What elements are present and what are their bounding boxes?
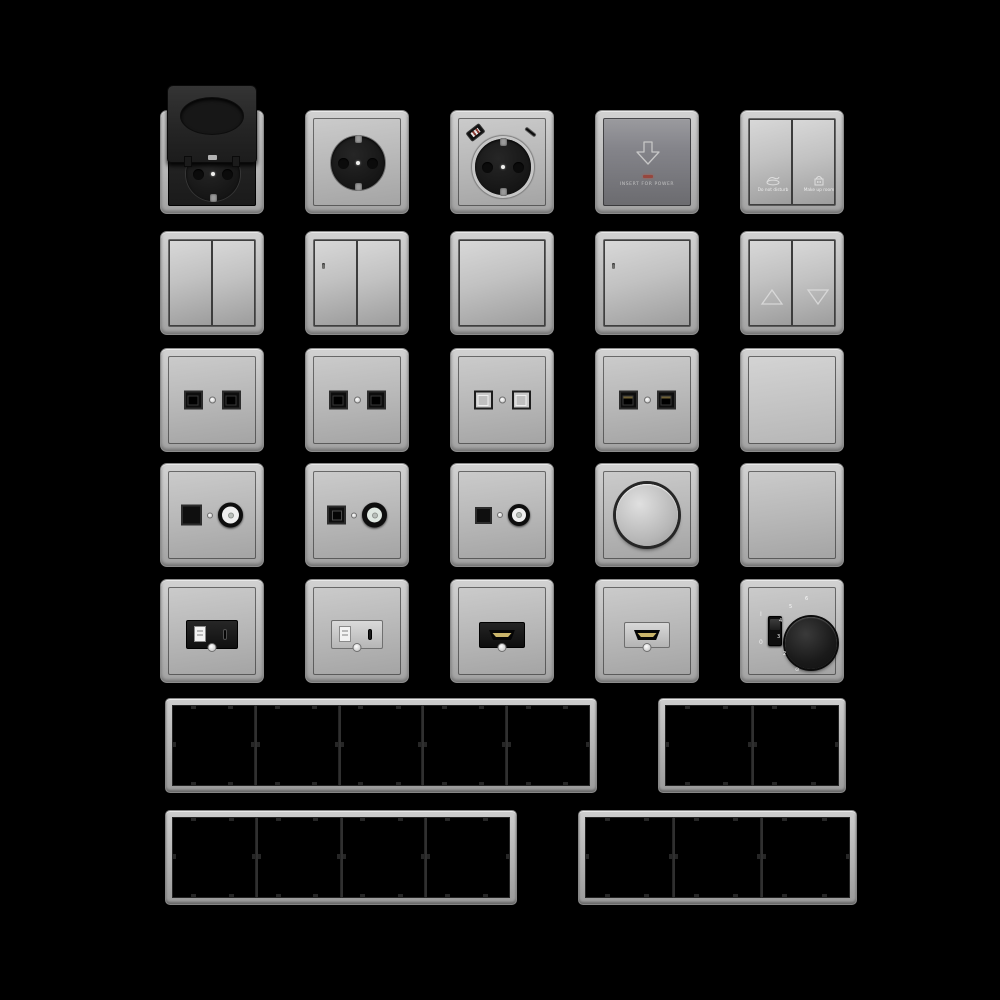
lid-hinge-left	[184, 156, 192, 167]
mount-tab	[835, 742, 838, 747]
mount-tab	[483, 894, 488, 897]
rocker-divider	[356, 241, 358, 325]
rocker-left[interactable]	[315, 241, 357, 325]
mount-tab	[822, 894, 827, 897]
socket-clip-bottom	[210, 194, 217, 202]
socket-center-pin	[211, 172, 215, 176]
coax-center	[229, 513, 233, 517]
jack-row	[313, 503, 401, 528]
thermostat-scale-mark: 2	[783, 651, 786, 657]
mount-tab	[228, 706, 233, 709]
frame-aperture	[673, 817, 762, 898]
frame-4-gang	[165, 810, 517, 905]
mount-tab	[275, 782, 280, 785]
make-up-room-icon	[811, 172, 827, 186]
tv-data-outlet-1	[160, 463, 264, 567]
tv-data-outlet-1-faceplate	[168, 471, 256, 559]
rocker-divider	[791, 241, 793, 325]
data-jack-right	[512, 391, 531, 410]
mount-tab	[748, 742, 751, 747]
socket-center-pin	[501, 165, 505, 169]
center-screw	[644, 397, 651, 404]
mount-tab	[398, 818, 403, 821]
do-not-disturb-icon	[765, 172, 781, 186]
mount-tab	[666, 742, 669, 747]
mount-tab	[644, 818, 649, 821]
mount-tab	[723, 782, 728, 785]
coax-center	[517, 513, 521, 517]
mount-tab	[782, 894, 787, 897]
thermostat-scale-mark: 4	[779, 618, 782, 624]
mount-tab	[694, 818, 699, 821]
frame-aperture	[341, 817, 426, 898]
frame-aperture	[172, 705, 255, 786]
frame-5-gang-aperture-row	[172, 705, 590, 786]
blind-down-arrow-icon	[806, 287, 830, 307]
rocker-blind-faceplate	[748, 239, 836, 327]
hdmi-outlet-light	[595, 579, 699, 683]
flip-lid-cover[interactable]	[167, 85, 257, 163]
rocker-area	[169, 240, 255, 326]
usb-charger-black-faceplate	[168, 587, 256, 675]
mount-tab	[772, 782, 777, 785]
mount-tab	[424, 742, 427, 747]
socket-flip-lid	[160, 110, 264, 214]
mount-tab	[396, 706, 401, 709]
rocker[interactable]	[460, 241, 544, 325]
jack-inner	[227, 396, 236, 404]
mount-tab	[694, 894, 699, 897]
jack-inner	[479, 396, 488, 405]
mount-tab	[733, 894, 738, 897]
mount-tab	[229, 818, 234, 821]
frame-5-gang	[165, 698, 597, 793]
mount-tab	[398, 894, 403, 897]
hdmi-outlet-light-faceplate	[603, 587, 691, 675]
slider-off-label: 0	[759, 639, 763, 646]
mount-tab	[358, 782, 363, 785]
rocker-area	[314, 240, 400, 326]
data-jack-right	[657, 391, 676, 410]
coax-connector	[218, 503, 243, 528]
frame-aperture	[506, 705, 590, 786]
rocker-area	[749, 240, 835, 326]
mount-tab	[685, 782, 690, 785]
lid-recess	[181, 98, 243, 134]
status-led	[322, 263, 325, 269]
rocker-left[interactable]	[170, 241, 212, 325]
hdmi-outlet-black	[450, 579, 554, 683]
coax-connector	[362, 503, 387, 528]
mount-tab	[228, 782, 233, 785]
thermostat-scale-mark: 6	[805, 596, 808, 602]
socket-hole-left	[338, 158, 349, 169]
mount-tab	[605, 894, 610, 897]
thermostat-scale-mark: 3	[777, 634, 780, 640]
mount-tab	[846, 854, 849, 859]
mount-tab	[343, 854, 346, 859]
rocker-double-led	[305, 231, 409, 335]
hdmi-port	[489, 630, 515, 640]
mount-tab	[757, 854, 760, 859]
rocker-area	[604, 240, 690, 326]
center-screw	[209, 397, 216, 404]
mount-tab	[427, 854, 430, 859]
socket-hole-right	[222, 169, 233, 180]
frame-2-gang-aperture-row	[665, 705, 839, 786]
jack-inner	[333, 511, 341, 519]
usb-a-port	[339, 626, 351, 642]
module-screw	[643, 643, 652, 652]
mount-tab	[526, 706, 531, 709]
usb-a-port	[465, 123, 485, 142]
usb-c-port	[368, 629, 372, 640]
jack-row	[168, 391, 256, 410]
data-jack-left	[184, 391, 203, 410]
blank-plate-flat-faceplate	[748, 471, 836, 559]
mount-tab	[421, 854, 424, 859]
blank-plate-flat	[740, 463, 844, 567]
mount-tab	[251, 742, 254, 747]
tv-data-outlet-2-faceplate	[313, 471, 401, 559]
mount-tab	[258, 854, 261, 859]
data-jack-left	[619, 391, 638, 410]
hdmi-contact	[638, 633, 657, 637]
dimmer-knob[interactable]	[616, 484, 678, 546]
schuko-socket-opening	[331, 136, 385, 190]
thermostat-scale-mark: 5	[789, 604, 792, 610]
slider-on-label: I	[760, 611, 762, 618]
mount-tab	[685, 706, 690, 709]
usb-a-contacts	[470, 128, 480, 137]
rocker[interactable]	[605, 241, 689, 325]
frame-aperture	[752, 705, 840, 786]
mount-tab	[191, 818, 196, 821]
center-screw	[207, 512, 213, 518]
usb-a-contacts	[342, 630, 348, 638]
mount-tab	[586, 854, 589, 859]
thermostat-faceplate: I065432⊙	[748, 587, 836, 675]
rocker-right[interactable]	[212, 241, 254, 325]
mount-tab	[442, 782, 447, 785]
mount-tab	[782, 818, 787, 821]
data-jack-right	[222, 391, 241, 410]
usb-charger-black	[160, 579, 264, 683]
mount-tab	[644, 894, 649, 897]
hdmi-contact	[493, 633, 512, 637]
jack-inner	[662, 396, 671, 404]
usb-a-port	[194, 626, 206, 642]
mount-tab	[445, 818, 450, 821]
frame-aperture	[172, 817, 256, 898]
jack-inner	[517, 396, 526, 405]
data-jack-left	[329, 391, 348, 410]
jack-inner	[624, 396, 633, 404]
data-outlet-double-black-2-faceplate	[313, 356, 401, 444]
rocker-right[interactable]	[357, 241, 399, 325]
usb-a-contacts	[197, 630, 203, 638]
mount-tab	[586, 742, 589, 747]
data-outlet-double-black-1	[160, 348, 264, 452]
rocker-divider	[791, 120, 793, 204]
keycard-switch-faceplate: INSERT FOR POWER	[603, 118, 691, 206]
mount-tab	[276, 818, 281, 821]
center-screw	[354, 397, 361, 404]
blind-up-arrow-icon	[760, 287, 784, 307]
mount-tab	[445, 894, 450, 897]
data-jack-left	[474, 391, 493, 410]
data-jack	[327, 506, 346, 525]
mount-tab	[733, 818, 738, 821]
socket-clip-top	[355, 135, 362, 143]
mount-tab	[229, 894, 234, 897]
socket-center-pin	[356, 161, 360, 165]
blind-rocker-down[interactable]	[792, 241, 834, 325]
mount-tab	[822, 818, 827, 821]
data-outlet-double-black-2	[305, 348, 409, 452]
mount-tab	[723, 706, 728, 709]
socket-schuko	[305, 110, 409, 214]
mount-tab	[360, 894, 365, 897]
jack-inner	[189, 396, 198, 404]
frame-2-gang	[658, 698, 846, 793]
mount-tab	[312, 706, 317, 709]
mount-tab	[483, 818, 488, 821]
lid-latch	[208, 155, 217, 160]
rotary-dimmer	[595, 463, 699, 567]
usb-charger-light	[305, 579, 409, 683]
rocker-single-faceplate	[458, 239, 546, 327]
mount-tab	[276, 894, 281, 897]
mount-tab	[275, 706, 280, 709]
rocker-double-faceplate	[168, 239, 256, 327]
mount-tab	[313, 894, 318, 897]
thermostat-scale-symbol: ⊙	[795, 667, 799, 673]
usb-charger-light-faceplate	[313, 587, 401, 675]
mount-tab	[341, 742, 344, 747]
schuko-socket-opening	[475, 139, 531, 195]
frame-3-gang-aperture-row	[585, 817, 850, 898]
mount-tab	[508, 742, 511, 747]
jack-inner	[334, 396, 343, 404]
mount-tab	[335, 742, 338, 747]
keycard-label: INSERT FOR POWER	[603, 182, 691, 187]
thermostat: I065432⊙	[740, 579, 844, 683]
mount-tab	[479, 782, 484, 785]
rocker-single-led	[595, 231, 699, 335]
rotary-dimmer-faceplate	[603, 471, 691, 559]
card-insert-arrow-icon	[633, 140, 663, 166]
rocker-blind	[740, 231, 844, 335]
socket-clip-top	[500, 138, 507, 146]
keycard-switch[interactable]: INSERT FOR POWER	[595, 110, 699, 214]
mount-tab	[442, 706, 447, 709]
socket-hole-right	[367, 158, 378, 169]
module-screw	[353, 643, 362, 652]
mount-tab	[754, 742, 757, 747]
frame-aperture	[339, 705, 423, 786]
mount-tab	[563, 782, 568, 785]
switch-socket-product-sheet: INSERT FOR POWERDo not disturbMake up ro…	[0, 0, 1000, 1000]
mount-tab	[360, 818, 365, 821]
blind-rocker-up[interactable]	[750, 241, 792, 325]
mount-tab	[396, 782, 401, 785]
center-screw	[499, 397, 506, 404]
usb-c-port	[223, 629, 227, 640]
socket-schuko-usb-faceplate	[458, 118, 546, 206]
socket-clip-bottom	[500, 188, 507, 196]
socket-hole-right	[513, 162, 524, 173]
jack-row	[168, 503, 256, 528]
mount-tab	[763, 854, 766, 859]
data-outlet-double-black-1-faceplate	[168, 356, 256, 444]
coax-connector	[508, 504, 530, 526]
lid-hinge-right	[232, 156, 240, 167]
data-outlet-double-light-faceplate	[458, 356, 546, 444]
hotel-left-label: Do not disturb	[753, 188, 793, 193]
frame-aperture	[422, 705, 506, 786]
mount-tab	[337, 854, 340, 859]
jack-row	[313, 391, 401, 410]
frame-aperture	[585, 817, 673, 898]
mount-tab	[191, 782, 196, 785]
data-outlet-double-rj45-faceplate	[603, 356, 691, 444]
status-led	[612, 263, 615, 269]
hotel-right-label: Make up room	[799, 188, 835, 193]
socket-hole-left	[482, 162, 493, 173]
frame-aperture	[256, 817, 341, 898]
mount-tab	[675, 854, 678, 859]
socket-schuko-faceplate	[313, 118, 401, 206]
tv-data-outlet-2	[305, 463, 409, 567]
jack-row	[458, 504, 546, 526]
mount-tab	[506, 854, 509, 859]
mount-tab	[563, 706, 568, 709]
blank-plate-raised	[740, 348, 844, 452]
mount-tab	[502, 742, 505, 747]
jack-inner	[372, 396, 381, 404]
module-screw	[498, 643, 507, 652]
frame-aperture	[425, 817, 510, 898]
hdmi-port	[634, 630, 660, 640]
rocker-single-led-faceplate	[603, 239, 691, 327]
socket-schuko-usb	[450, 110, 554, 214]
mount-tab	[811, 706, 816, 709]
data-outlet-double-light	[450, 348, 554, 452]
module-screw	[208, 643, 217, 652]
jack-row	[458, 391, 546, 410]
frame-aperture	[761, 817, 850, 898]
rocker-double	[160, 231, 264, 335]
mount-tab	[811, 782, 816, 785]
center-screw	[497, 512, 503, 518]
mount-tab	[173, 742, 176, 747]
mount-tab	[358, 706, 363, 709]
socket-hole-left	[193, 169, 204, 180]
mount-tab	[526, 782, 531, 785]
jack-row	[603, 391, 691, 410]
usb-c-port	[524, 126, 537, 137]
mount-tab	[252, 854, 255, 859]
rocker-area: Do not disturbMake up room	[749, 119, 835, 205]
data-outlet-double-rj45	[595, 348, 699, 452]
mount-tab	[191, 894, 196, 897]
rocker-area	[459, 240, 545, 326]
frame-aperture	[255, 705, 339, 786]
power-led	[643, 175, 653, 178]
mount-tab	[669, 854, 672, 859]
data-jack	[475, 507, 492, 524]
thermostat-knob[interactable]	[785, 617, 837, 669]
hdmi-outlet-black-faceplate	[458, 587, 546, 675]
mount-tab	[605, 818, 610, 821]
mount-tab	[772, 706, 777, 709]
tv-data-outlet-3	[450, 463, 554, 567]
mount-tab	[173, 854, 176, 859]
data-jack	[181, 505, 202, 526]
blank-plate-raised-faceplate	[748, 356, 836, 444]
mount-tab	[418, 742, 421, 747]
hotel-service-rocker-faceplate: Do not disturbMake up room	[748, 118, 836, 206]
mount-tab	[313, 818, 318, 821]
mount-tab	[191, 706, 196, 709]
hotel-service-rocker: Do not disturbMake up room	[740, 110, 844, 214]
coax-center	[373, 513, 377, 517]
mount-tab	[312, 782, 317, 785]
rocker-divider	[211, 241, 213, 325]
frame-3-gang	[578, 810, 857, 905]
mount-tab	[479, 706, 484, 709]
socket-clip-bottom	[355, 183, 362, 191]
data-jack-right	[367, 391, 386, 410]
frame-4-gang-aperture-row	[172, 817, 510, 898]
center-screw	[351, 512, 357, 518]
rocker-double-led-faceplate	[313, 239, 401, 327]
tv-data-outlet-3-faceplate	[458, 471, 546, 559]
frame-aperture	[665, 705, 752, 786]
rocker-single	[450, 231, 554, 335]
mount-tab	[257, 742, 260, 747]
